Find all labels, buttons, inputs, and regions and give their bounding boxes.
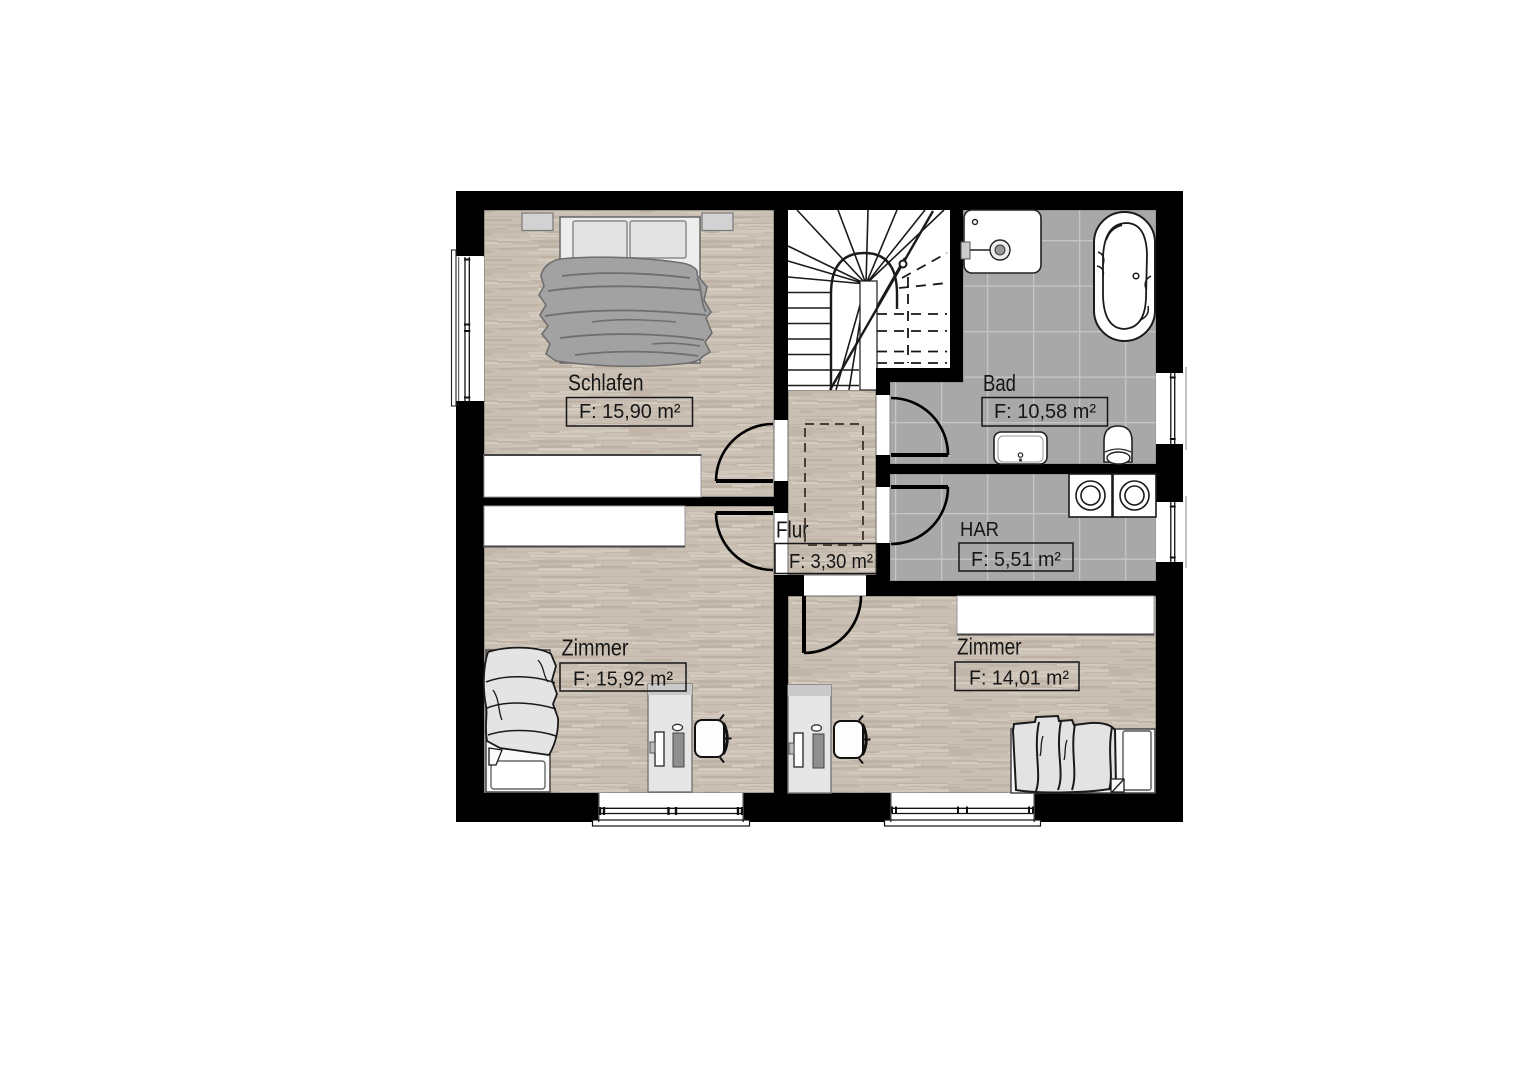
svg-text:Schlafen: Schlafen bbox=[568, 370, 644, 396]
svg-text:F: 15,90 m²: F: 15,90 m² bbox=[579, 401, 681, 423]
svg-text:F: 3,30 m²: F: 3,30 m² bbox=[789, 551, 873, 573]
svg-text:Zimmer: Zimmer bbox=[957, 634, 1022, 660]
svg-text:HAR: HAR bbox=[960, 519, 999, 541]
svg-text:F: 15,92 m²: F: 15,92 m² bbox=[573, 669, 673, 691]
svg-text:Zimmer: Zimmer bbox=[562, 635, 629, 661]
svg-text:F: 10,58 m²: F: 10,58 m² bbox=[994, 401, 1096, 423]
svg-text:Flur: Flur bbox=[776, 517, 809, 543]
svg-text:Bad: Bad bbox=[983, 370, 1016, 396]
svg-text:F: 5,51 m²: F: 5,51 m² bbox=[971, 549, 1061, 571]
svg-text:F: 14,01 m²: F: 14,01 m² bbox=[969, 668, 1069, 690]
